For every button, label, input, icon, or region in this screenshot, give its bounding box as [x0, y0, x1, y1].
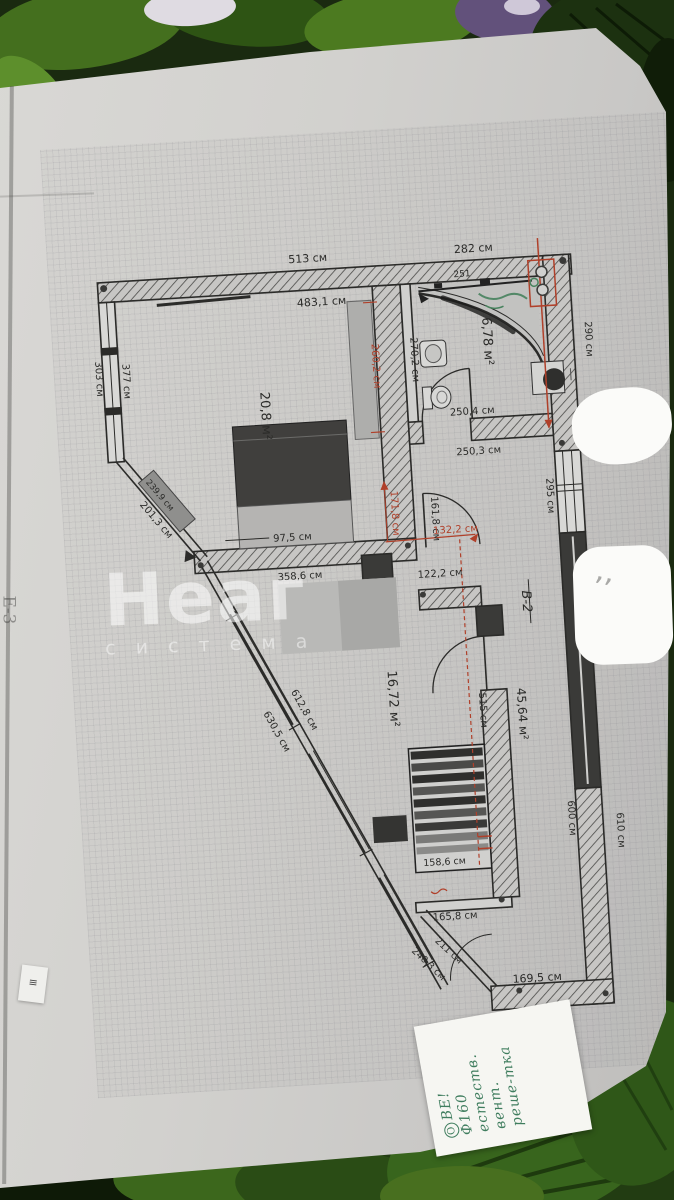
bed: [232, 420, 353, 549]
note-slip: ОВЕ! Ф160 естеств. вент. реше-тка: [414, 999, 593, 1156]
rug-shadow: [338, 577, 400, 650]
dim-483: 483,1 см: [297, 294, 347, 310]
corner-sticker: ≡: [18, 965, 48, 1004]
dim-610: 610 см: [614, 812, 627, 848]
dim-513: 513 см: [288, 251, 328, 266]
dim-165: 165,8 см: [432, 910, 477, 924]
living-area: 16,72 м²: [384, 670, 402, 727]
margin-pencil-note: Е-3: [0, 596, 18, 625]
dim-97: 97,5 см: [273, 531, 312, 544]
dim-290: 290 см: [582, 321, 595, 357]
photo-of-floor-plan: 239,9 см: [0, 0, 674, 1200]
dim-600: 600 см: [565, 800, 578, 836]
dim-377: 377 см: [119, 363, 132, 399]
dim-295: 295 см: [543, 478, 556, 514]
sink: [419, 340, 447, 368]
furniture: 239,9 см: [127, 284, 491, 888]
note-line-6: тка: [497, 1044, 518, 1079]
right-wall-window: [554, 450, 585, 533]
dim-358: 358,6 см: [277, 570, 322, 584]
hall-step-wall: [419, 586, 482, 610]
small-dark-item: [372, 815, 408, 843]
hall-left-wall-pier: [476, 605, 504, 637]
hall-name: В-2: [518, 590, 534, 613]
dim-282: 282 см: [454, 241, 494, 256]
toilet: [422, 386, 451, 410]
mixer-icon: [480, 278, 490, 285]
bedroom-area: 20,8 м²: [256, 392, 274, 441]
bathroom-bottom-wall-right: [470, 413, 553, 440]
red-scribble: [431, 889, 447, 894]
living-door-arc: [430, 636, 487, 693]
whiteout-patch-lower: [572, 544, 674, 665]
dim-515: 515 см: [476, 692, 489, 728]
dim-251: 251: [453, 269, 471, 280]
radiator-stairs: [408, 744, 491, 872]
dim-122: 122,2 см: [417, 567, 462, 581]
living-door-leaf: [484, 636, 487, 690]
handwritten-note: ОВЕ! Ф160 естеств. вент. реше-тка: [423, 1006, 528, 1139]
bathroom-area: 6,78 м²: [478, 317, 496, 366]
hall-area-note: 45,64 м²: [514, 687, 531, 740]
tap-icon: [434, 283, 442, 288]
right-wall-lower: [575, 787, 614, 1004]
dim-250-3: 250,3 см: [456, 445, 501, 459]
dim-303: 303 см: [92, 361, 105, 397]
bathroom-bottom-wall-left: [408, 421, 423, 444]
